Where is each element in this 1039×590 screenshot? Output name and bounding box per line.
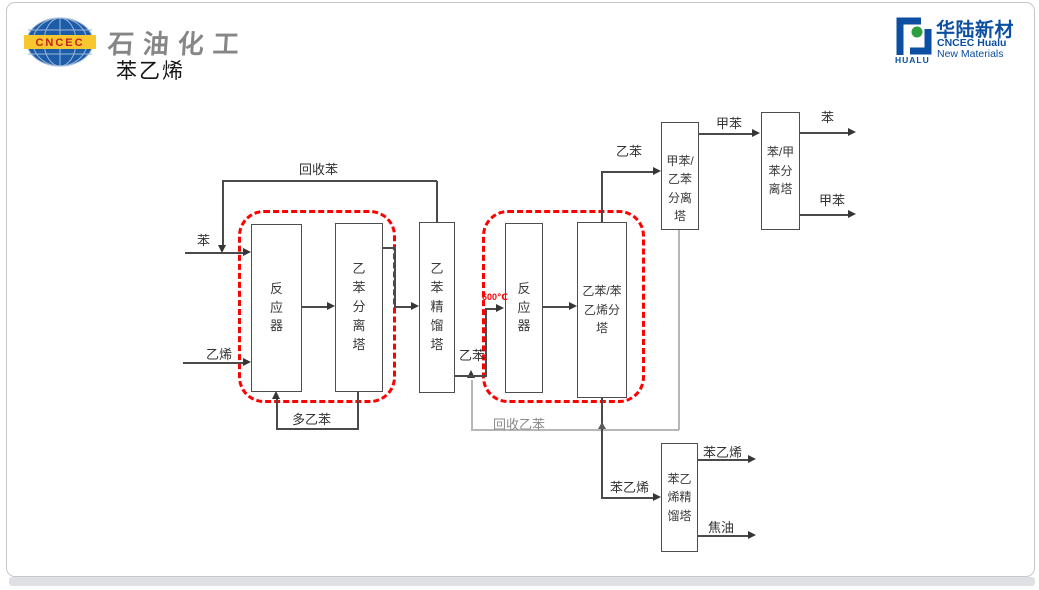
stream-label-styrene-feed: 苯乙烯	[610, 477, 649, 496]
stream-label-benzene-feed: 苯	[197, 230, 210, 249]
arrowhead-recycle-benzene	[218, 245, 226, 253]
flow-line-separator-out-2	[394, 247, 396, 308]
flow-line-polyeb-bottom	[276, 428, 359, 430]
tower-benzene-toluene-separation: 苯/甲 苯分 离塔	[761, 112, 800, 230]
flow-line-benzene-out	[800, 132, 849, 134]
stream-label-toluene-out: 甲苯	[819, 190, 845, 209]
flow-line-styrene-down	[601, 398, 603, 498]
stream-label-temperature: 600℃	[482, 292, 508, 303]
tower-styrene-distillation: 苯乙 烯精 馏塔	[661, 443, 698, 552]
flow-line-polyeb-down	[357, 392, 359, 430]
flow-line-reactor2-to-splitter	[543, 306, 570, 308]
tower-eb-distillation: 乙 苯 精 馏 塔	[419, 222, 455, 393]
flow-line-recycle-benzene-left	[222, 181, 224, 245]
arrowhead-reactor1-to-separator	[327, 302, 335, 310]
flow-line-toluene-out	[800, 214, 849, 216]
arrowhead-into-toluene-eb-tower	[653, 167, 661, 175]
flow-line-eb-top-v	[601, 172, 603, 223]
tower-eb-styrene-splitter: 乙苯/苯 乙烯分 塔	[577, 222, 627, 398]
stream-label-benzene-out: 苯	[821, 107, 834, 126]
arrowhead-polyeb	[272, 391, 280, 399]
arrowhead-benzene-feed	[243, 248, 251, 256]
slide: CNCEC 石油化工 苯乙烯 HUALU 华陆新材 CNCEC Hualu Ne…	[0, 0, 1039, 590]
flow-line-benzene-feed	[185, 252, 244, 254]
flow-line-recycle-eb-down	[678, 230, 680, 430]
arrowhead-benzene-out	[848, 128, 856, 136]
stream-label-poly-ethylbenzene: 多乙苯	[292, 409, 331, 428]
flow-line-eb-to-reactor2-1	[455, 375, 487, 377]
flow-line-recycle-benzene-right	[436, 181, 438, 223]
svg-text:CNCEC: CNCEC	[35, 37, 84, 49]
flow-line-eb-to-reactor2-2	[485, 308, 487, 377]
flow-line-recycle-eb-up	[471, 380, 473, 430]
arrowhead-into-reactor2	[496, 304, 504, 312]
flow-line-eb-top-h	[601, 171, 653, 173]
tower-reactor-1: 反 应 器	[251, 224, 302, 392]
flow-line-recycle-benzene-top	[222, 180, 437, 182]
line-crossing-bump	[598, 422, 606, 429]
slide-bottom-band	[9, 577, 1035, 586]
arrowhead-tar-out	[748, 531, 756, 539]
hualu-logo-caption: HUALU	[895, 55, 930, 65]
page-title: 苯乙烯	[116, 55, 185, 85]
arrowhead-ethylene-feed	[243, 358, 251, 366]
arrowhead-into-distillation	[411, 302, 419, 310]
stream-label-recycle-ethylbenzene: 回收乙苯	[493, 414, 545, 433]
tower-toluene-eb-separation: 甲苯/ 乙苯 分离 塔	[661, 122, 699, 230]
arrowhead-into-styrene-tower	[653, 493, 661, 501]
hualu-logo-icon	[894, 15, 934, 55]
flow-line-toluene-mid	[699, 133, 753, 135]
stream-label-ethylbenzene-mid: 乙苯	[459, 345, 485, 364]
arrowhead-into-splitter	[569, 302, 577, 310]
arrowhead-styrene-out	[748, 455, 756, 463]
cncec-logo-icon: CNCEC	[24, 16, 96, 68]
arrowhead-toluene-out	[848, 210, 856, 218]
hualu-brand-en2: New Materials	[937, 48, 1004, 60]
flow-line-polyeb-up	[276, 399, 278, 429]
arrowhead-into-ben-toluene-tower	[752, 129, 760, 137]
flow-line-separator-out-3	[394, 306, 412, 308]
stream-label-recycle-benzene: 回收苯	[299, 159, 338, 178]
stream-label-ethylene-feed: 乙烯	[206, 344, 232, 363]
flow-line-reactor1-to-separator	[302, 306, 328, 308]
stream-label-tar-out: 焦油	[708, 517, 734, 536]
flow-line-styrene-feed	[601, 497, 654, 499]
stream-label-styrene-out: 苯乙烯	[703, 442, 742, 461]
tower-reactor-2: 反 应 器	[505, 223, 543, 393]
stream-label-toluene-mid: 甲苯	[716, 113, 742, 132]
stream-label-ethylbenzene-top: 乙苯	[616, 141, 642, 160]
tower-eb-separation: 乙 苯 分 离 塔	[335, 223, 383, 392]
